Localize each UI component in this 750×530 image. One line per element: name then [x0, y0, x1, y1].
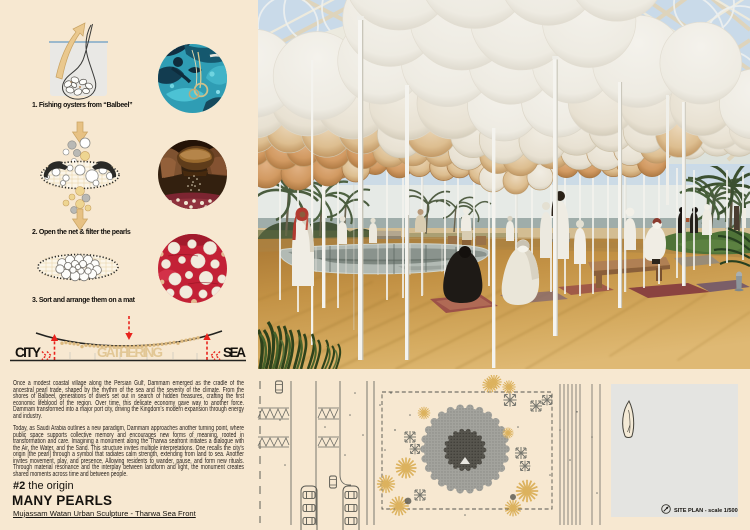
svg-text:SITE PLAN - scale 1/500: SITE PLAN - scale 1/500 — [674, 508, 738, 514]
svg-text:CITY: CITY — [15, 345, 41, 360]
svg-text:GATHERING: GATHERING — [97, 345, 163, 360]
svg-text:SEA: SEA — [223, 345, 246, 360]
